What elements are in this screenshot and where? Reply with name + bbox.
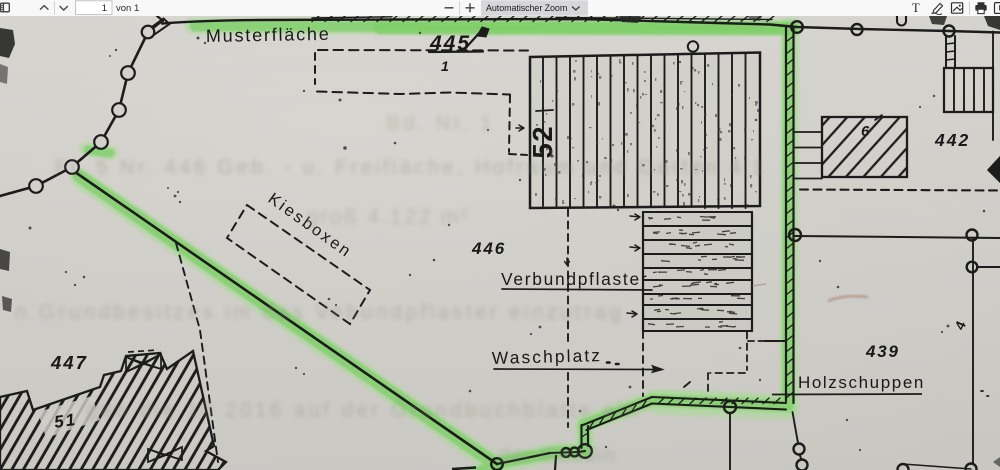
svg-text:gen die 10 2016 auf der Grundb: gen die 10 2016 auf der Grundbuchblatte … xyxy=(86,399,640,422)
svg-text:Automatischer Zoom: Automatischer Zoom xyxy=(486,3,567,13)
svg-text:Bd. Nr. 1: Bd. Nr. 1 xyxy=(386,112,495,135)
svg-text:447: 447 xyxy=(50,352,88,373)
svg-text:Holzschuppen: Holzschuppen xyxy=(798,373,925,392)
svg-text:1: 1 xyxy=(102,3,107,14)
svg-text:n Grundbesitzes im das Vebundp: n Grundbesitzes im das Vebundpflaster ei… xyxy=(15,301,624,324)
svg-text:Verbundpflaster: Verbundpflaster xyxy=(501,269,648,289)
svg-text:439: 439 xyxy=(865,342,900,361)
svg-text:Musterfläche: Musterfläche xyxy=(206,24,331,46)
svg-text:51: 51 xyxy=(53,410,78,432)
svg-text:6: 6 xyxy=(861,123,870,140)
svg-text:Fl. 5 Nr. 446 Geb. - u. Freif: Fl. 5 Nr. 446 Geb. - u. Freifläche, Hofr… xyxy=(55,156,767,179)
svg-text:groß 4.122 m²: groß 4.122 m² xyxy=(306,204,470,229)
svg-text:1: 1 xyxy=(441,58,449,74)
svg-text:52: 52 xyxy=(527,125,558,159)
svg-text:446: 446 xyxy=(471,239,506,258)
svg-text:Waschplatz: Waschplatz xyxy=(492,345,603,368)
svg-text:von 1: von 1 xyxy=(116,3,139,14)
svg-text:442: 442 xyxy=(934,130,970,150)
svg-text:445: 445 xyxy=(429,32,471,55)
svg-text:der Gaudin: der Gaudin xyxy=(498,444,617,467)
svg-text:T: T xyxy=(912,1,920,15)
